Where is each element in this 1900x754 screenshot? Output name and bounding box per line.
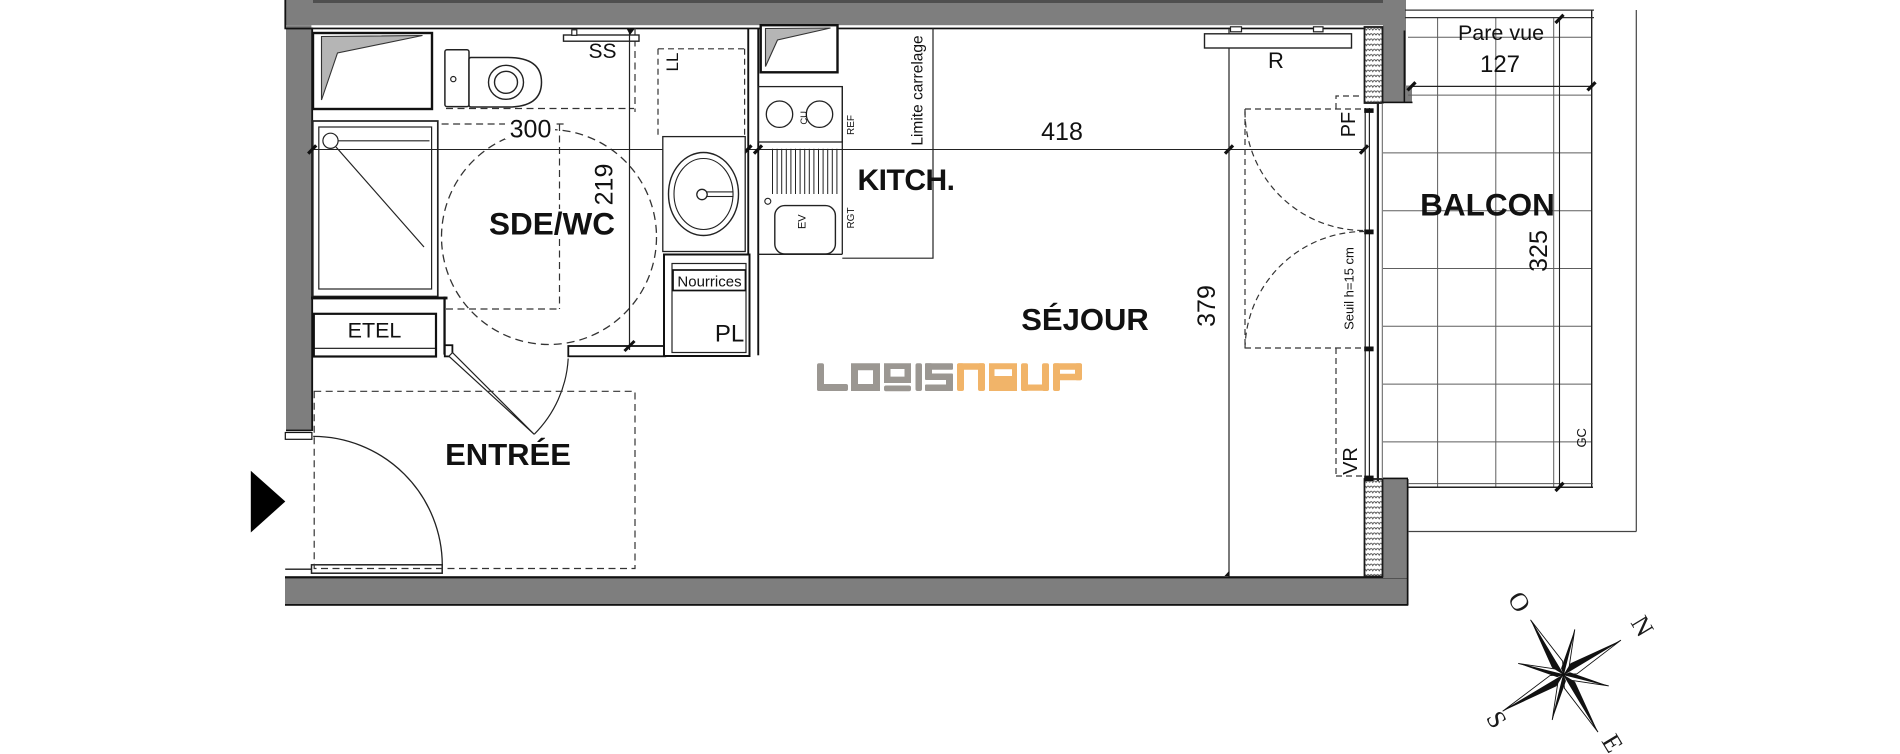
svg-text:379: 379 xyxy=(1193,285,1221,327)
svg-text:CU: CU xyxy=(799,111,810,125)
svg-text:LL: LL xyxy=(663,53,682,72)
svg-text:KITCH.: KITCH. xyxy=(858,164,955,197)
svg-text:BALCON: BALCON xyxy=(1420,187,1555,223)
svg-text:Seuil h=15 cm: Seuil h=15 cm xyxy=(1342,247,1357,330)
svg-text:PF: PF xyxy=(1338,112,1360,138)
svg-text:EV: EV xyxy=(797,214,809,229)
svg-text:RGT: RGT xyxy=(846,207,857,228)
svg-text:SS: SS xyxy=(588,40,616,63)
svg-text:Nourrices: Nourrices xyxy=(677,274,741,291)
svg-text:Limite carrelage: Limite carrelage xyxy=(910,35,927,145)
svg-text:SDE/WC: SDE/WC xyxy=(489,206,615,242)
svg-text:ETEL: ETEL xyxy=(348,319,402,343)
svg-text:VR: VR xyxy=(1340,447,1362,475)
svg-text:PL: PL xyxy=(715,321,744,348)
svg-text:ENTRÉE: ENTRÉE xyxy=(445,437,571,472)
svg-text:GC: GC xyxy=(1574,428,1589,448)
svg-text:127: 127 xyxy=(1480,51,1520,78)
svg-text:Pare vue: Pare vue xyxy=(1458,21,1544,45)
svg-text:325: 325 xyxy=(1525,230,1553,272)
svg-text:418: 418 xyxy=(1041,118,1083,146)
svg-text:R: R xyxy=(1268,48,1284,73)
svg-text:REF: REF xyxy=(846,115,857,135)
svg-text:SÉJOUR: SÉJOUR xyxy=(1021,302,1148,337)
svg-text:219: 219 xyxy=(591,164,619,206)
svg-text:300: 300 xyxy=(510,116,552,144)
